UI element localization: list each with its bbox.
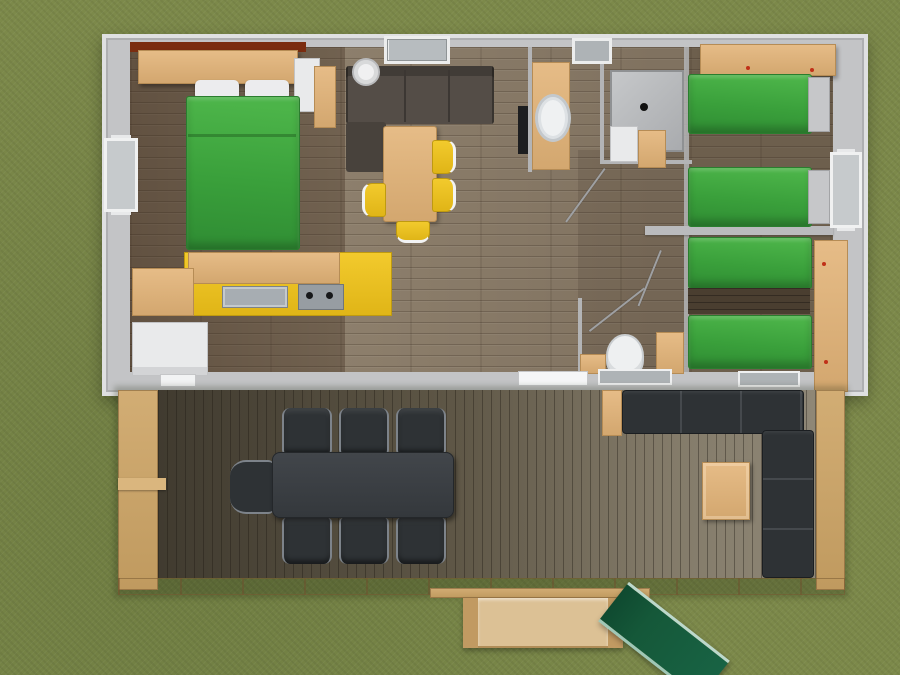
skylight-window bbox=[572, 38, 612, 64]
deck-chair bbox=[282, 408, 332, 454]
window-left-wall bbox=[104, 138, 138, 212]
single-bed bbox=[688, 167, 812, 227]
sofa-chaise bbox=[346, 122, 386, 172]
bath-cabinet-wood bbox=[638, 130, 666, 168]
double-bed bbox=[186, 96, 300, 250]
kitchen-sink bbox=[222, 286, 288, 308]
side-counter bbox=[132, 268, 194, 316]
single-bed bbox=[688, 237, 812, 289]
side-table bbox=[602, 390, 622, 436]
desk-lamp bbox=[822, 262, 826, 266]
shower-drain bbox=[640, 103, 648, 111]
deck-chair bbox=[396, 518, 446, 564]
bath-cabinet-white bbox=[610, 126, 638, 162]
floorplan-render bbox=[0, 0, 900, 675]
dark-floor-strip bbox=[688, 288, 810, 314]
deck-table bbox=[272, 452, 454, 518]
burner bbox=[306, 292, 313, 299]
deck-chair bbox=[339, 518, 389, 564]
deck-chair-end bbox=[230, 460, 274, 514]
deck-railing-left bbox=[118, 390, 158, 590]
cooktop bbox=[298, 284, 344, 310]
lounge-sofa-right bbox=[762, 430, 814, 578]
partition-wall-horizontal bbox=[645, 226, 833, 235]
dining-chair bbox=[362, 183, 386, 217]
wall-desk bbox=[814, 240, 848, 392]
deck-chair bbox=[339, 408, 389, 454]
bed-fold-line bbox=[188, 134, 296, 137]
round-lamp bbox=[352, 58, 380, 86]
coffee-table bbox=[702, 462, 750, 520]
headboard-shelf bbox=[138, 50, 298, 84]
single-bed bbox=[688, 74, 812, 134]
sofa-cushion-line bbox=[404, 70, 406, 122]
shelf-kids-room bbox=[700, 44, 836, 76]
bed-headboard bbox=[808, 77, 830, 132]
desk-lamp bbox=[824, 360, 828, 364]
tall-cabinet bbox=[314, 66, 336, 128]
fridge bbox=[132, 322, 208, 376]
radiator bbox=[518, 106, 528, 154]
dining-chair bbox=[432, 140, 456, 174]
bed-headboard bbox=[808, 170, 830, 224]
dining-chair bbox=[396, 221, 430, 243]
shelf-lamp bbox=[810, 68, 814, 72]
shower-wall bbox=[600, 56, 604, 164]
single-bed bbox=[688, 315, 812, 369]
sliding-door bbox=[518, 371, 588, 386]
deck-chair bbox=[396, 408, 446, 454]
window-right-wall bbox=[830, 152, 862, 228]
deck-rail-crossbar bbox=[118, 478, 166, 490]
deck-chair bbox=[282, 518, 332, 564]
wc-cabinet bbox=[656, 332, 684, 374]
lounge-sofa-top bbox=[622, 390, 804, 434]
window-top bbox=[384, 36, 450, 64]
window-bottom-wall bbox=[738, 371, 800, 387]
burner bbox=[326, 292, 333, 299]
sofa-cushion-line bbox=[448, 70, 450, 122]
steps bbox=[463, 598, 623, 648]
dining-table bbox=[383, 126, 437, 222]
shelf-lamp bbox=[746, 66, 750, 70]
deck-railing-right bbox=[816, 390, 845, 590]
kitchen-wood-top bbox=[188, 252, 340, 284]
washbasin bbox=[535, 94, 571, 142]
dining-chair bbox=[432, 178, 456, 212]
window-bottom-wall bbox=[598, 369, 672, 385]
